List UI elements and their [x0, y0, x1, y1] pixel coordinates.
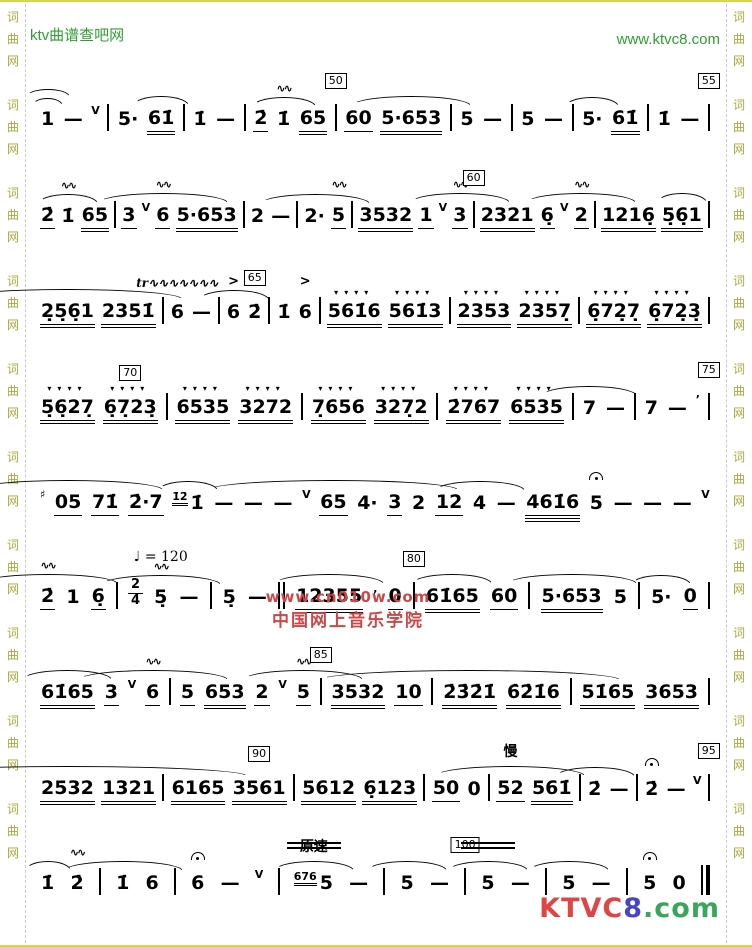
music-line: ♯0571̇2̇·71̇2̇1̇———V654·32124—461̇65———V	[40, 458, 710, 516]
logo-part: 8	[623, 893, 643, 924]
note-group: ∿∿6	[155, 173, 170, 229]
border-char: 曲	[728, 468, 750, 490]
barline	[626, 837, 628, 896]
sheet-music-page: 词曲网词曲网词曲网词曲网词曲网词曲网词曲网词曲网词曲网词曲网 词曲网词曲网词曲网…	[0, 0, 752, 947]
barline	[293, 743, 295, 802]
note-group: —	[605, 366, 626, 421]
note-group: 1̇	[657, 77, 672, 132]
note-group: 6	[145, 841, 160, 896]
border-char: 词	[728, 94, 750, 116]
note-group: 5	[613, 555, 628, 610]
note-group: 2̇	[587, 747, 602, 802]
note-group: 0	[672, 841, 687, 896]
border-char: 网	[728, 666, 750, 688]
barline	[351, 170, 353, 229]
border-char-group: 词曲网	[728, 358, 750, 424]
note-group: ∿∿5	[296, 650, 311, 706]
fermata-icon	[645, 758, 659, 766]
barline	[636, 743, 638, 802]
note-group: —	[482, 77, 503, 132]
note-group: ▾▾▾▾7̣656	[311, 365, 366, 421]
note-group: 2	[411, 461, 426, 516]
logo-part: .	[643, 893, 654, 924]
measure-number-box: 65	[244, 270, 266, 286]
staccato-marks-icon: ▾▾▾▾	[464, 288, 504, 297]
barline	[174, 837, 176, 896]
note-group: 0	[683, 554, 698, 610]
note-group: —	[429, 841, 450, 896]
note-group: —	[672, 461, 693, 516]
staccato-marks-icon: ▾▾▾▾	[381, 384, 421, 393]
note-group: ∿∿1̇	[60, 174, 75, 229]
site-name-link[interactable]: ktv曲谱查吧网	[30, 24, 124, 45]
note-group: ▾▾▾▾6535	[175, 365, 230, 421]
watermark-site-name: 中国网上音乐学院	[248, 606, 448, 631]
border-char: 网	[728, 842, 750, 864]
note-group: 5·653	[176, 173, 238, 229]
watermark-url: www.cn010w.com	[248, 588, 448, 606]
fermata-icon	[191, 852, 205, 860]
staccato-marks-icon: ▾▾▾▾	[395, 288, 435, 297]
note-group: 5	[459, 77, 474, 132]
barline	[708, 551, 710, 610]
watermark: www.cn010w.com 中国网上音乐学院	[248, 588, 448, 631]
staccato-marks-icon: ▾▾▾▾	[110, 384, 150, 393]
music-line: ▾▾▾▾5̣6̣27̣▾▾▾▾706̣7̣23̣▾▾▾▾6535▾▾▾▾3272…	[40, 363, 710, 421]
note-group: 7	[644, 366, 659, 421]
tremolo-lines-icon	[461, 842, 515, 849]
note-group: —	[220, 841, 241, 896]
border-char: 词	[728, 710, 750, 732]
slur-arc	[412, 574, 492, 584]
border-char: 网	[2, 226, 24, 248]
mordent-icon: ∿∿	[574, 178, 588, 191]
staccato-marks-icon: ▾▾▾▾	[334, 288, 374, 297]
barline	[570, 647, 572, 706]
note-group: ▾▾▾▾561̇3	[388, 269, 443, 325]
music-line: 2̇∿∿1̇653V∿∿65·6532—2·∿∿535321V∿∿3602321…	[40, 171, 710, 229]
border-char: 曲	[728, 28, 750, 50]
border-char: 网	[2, 138, 24, 160]
barline	[436, 362, 438, 421]
left-dashed-divider	[25, 4, 26, 943]
staccato-marks-icon: ▾▾▾▾	[525, 288, 565, 297]
border-char: 词	[728, 6, 750, 28]
note-group: 1̇	[115, 841, 130, 896]
note-group: tr∿∿∿∿∿∿∿6	[170, 270, 185, 325]
note-group: ▾▾▾▾2̇767	[446, 365, 501, 421]
barline	[701, 834, 710, 896]
staccato-marks-icon: ▾▾▾▾	[246, 384, 286, 393]
slur-arc	[133, 96, 189, 106]
barline	[450, 73, 452, 132]
accent-icon: >	[228, 274, 239, 289]
logo-part: KTVC	[539, 893, 623, 924]
note-group: 5·653	[541, 554, 603, 610]
note-group: ∿∿2̇	[40, 554, 55, 610]
barline: 85	[320, 647, 322, 706]
border-char: 词	[728, 622, 750, 644]
border-char: 网	[728, 50, 750, 72]
note-group: —	[348, 841, 369, 896]
note-group: ▾▾▾▾2353	[457, 269, 512, 325]
note-group: ▾▾▾▾706̣7̣23̣	[103, 365, 158, 421]
border-char-group: 词曲网	[2, 270, 24, 336]
border-char: 词	[728, 270, 750, 292]
note-group: 2532	[40, 746, 95, 802]
note-group: 5·653	[380, 76, 442, 132]
note-group: —	[510, 841, 531, 896]
note-group: —	[666, 747, 687, 802]
music-line: 1̇∿∿2̇1̇66—V原速6765—5—1005—5—50	[40, 838, 710, 896]
barline	[268, 266, 270, 325]
grace-notes: 676	[294, 870, 317, 886]
note-group: 6̣123	[362, 746, 417, 802]
barline	[162, 266, 164, 325]
border-char: 词	[2, 358, 24, 380]
border-char-group: 词曲网	[728, 94, 750, 160]
logo-part: com	[654, 893, 720, 924]
note-group: ▾▾▾▾6̣72̣3̣	[647, 269, 702, 325]
note-group: 61̇	[147, 76, 175, 132]
note-group: ▾▾▾▾561̇6	[327, 269, 382, 325]
note-group: 4·	[356, 461, 378, 516]
note-group: —	[613, 461, 634, 516]
note-group: 05	[54, 460, 82, 516]
mordent-icon: ∿∿	[296, 655, 310, 668]
breath-mark: V	[701, 457, 710, 516]
border-char: 曲	[2, 380, 24, 402]
barline: 60	[473, 170, 475, 229]
barline	[301, 362, 303, 421]
barline	[243, 170, 245, 229]
note-group: 3532	[358, 173, 413, 229]
border-char: 词	[2, 798, 24, 820]
note-group: 6	[190, 841, 205, 896]
border-char: 词	[2, 534, 24, 556]
barline	[647, 73, 649, 132]
staccato-marks-icon: ▾▾▾▾	[183, 384, 223, 393]
staccato-marks-icon: ▾▾▾▾	[655, 288, 695, 297]
note-group: ∿∿5	[331, 173, 346, 229]
border-char: 曲	[2, 204, 24, 226]
border-char: 网	[2, 402, 24, 424]
border-char: 网	[2, 490, 24, 512]
note-group: 51̇65	[580, 650, 635, 706]
tremolo-lines-icon	[287, 842, 341, 849]
staccato-marks-icon: ▾▾▾▾	[594, 288, 634, 297]
border-char-group: 词曲网	[728, 182, 750, 248]
barline: 50	[335, 73, 337, 132]
note-group: 1̇	[276, 270, 291, 325]
note-group: 1321	[101, 746, 156, 802]
border-char: 曲	[2, 820, 24, 842]
barline	[634, 362, 636, 421]
breath-mark: V	[91, 73, 100, 132]
fermata-icon	[643, 852, 657, 860]
note-group: 5	[520, 77, 535, 132]
note-group: —	[215, 77, 236, 132]
note-group: 461̇6	[525, 460, 580, 516]
border-char-group: 词曲网	[2, 446, 24, 512]
border-char: 曲	[2, 644, 24, 666]
border-char: 网	[728, 754, 750, 776]
note-group: 6165	[171, 746, 226, 802]
breath-mark: V	[255, 837, 264, 896]
border-char: 词	[2, 710, 24, 732]
staccato-marks-icon: ▾▾▾▾	[454, 384, 494, 393]
note-group: 原速6765	[294, 841, 334, 896]
note-group: 652̇	[247, 270, 262, 325]
note-group: —	[543, 77, 564, 132]
note-group: —	[178, 555, 199, 610]
note-group: 4	[472, 461, 487, 516]
note-group: 5̣	[222, 555, 237, 610]
barline	[210, 551, 212, 610]
mordent-icon: ∿∿	[70, 846, 84, 859]
note-group: —	[496, 461, 517, 516]
note-group: >6	[298, 270, 313, 325]
border-char: 词	[728, 798, 750, 820]
note-group: 5·	[581, 77, 603, 132]
border-char: 网	[728, 314, 750, 336]
note-group: 2̇3̇2̇1̇	[442, 650, 497, 706]
note-group: ▾▾▾▾5̣6̣27̣	[40, 365, 95, 421]
barline	[511, 73, 513, 132]
border-char: 网	[728, 578, 750, 600]
barline	[107, 73, 109, 132]
note-group: 61̇	[611, 76, 639, 132]
note-group: 1	[40, 77, 55, 132]
note-group: 1216̣	[601, 173, 656, 229]
right-dashed-divider	[726, 4, 727, 943]
grace-notes: 1̇2̇	[172, 490, 187, 506]
note-group: 5612	[301, 746, 356, 802]
border-char: 曲	[728, 732, 750, 754]
measure-number-box: 75	[698, 362, 720, 378]
accent-icon: >	[300, 274, 311, 289]
mordent-icon: ∿∿	[40, 559, 54, 572]
border-char: 网	[2, 314, 24, 336]
border-char-group: 词曲网	[2, 534, 24, 600]
border-char-group: 词曲网	[728, 446, 750, 512]
border-char: 网	[2, 666, 24, 688]
staccato-marks-icon: ▾▾▾▾	[47, 384, 87, 393]
barline	[244, 73, 246, 132]
mordent-icon: ∿∿	[156, 178, 170, 191]
border-char: 曲	[728, 556, 750, 578]
note-group: 5	[400, 841, 415, 896]
border-char: 词	[728, 446, 750, 468]
barline: 75	[708, 362, 710, 421]
top-border-line	[0, 0, 752, 2]
note-group: 5̣6̣1	[661, 173, 703, 229]
border-char-group: 词曲网	[728, 710, 750, 776]
border-char: 网	[728, 226, 750, 248]
border-char: 网	[728, 138, 750, 160]
mordent-icon: ∿∿	[276, 82, 290, 95]
barline	[169, 647, 171, 706]
barline	[708, 170, 710, 229]
border-char-group: 词曲网	[728, 798, 750, 864]
note-group: —	[642, 461, 663, 516]
slur-arc	[274, 574, 384, 584]
note-group: 5	[180, 650, 195, 706]
music-line: 61̇653V∿∿656532V∿∿5853532102̇3̇2̇1̇6̇2̇1…	[40, 648, 710, 706]
note-group: 1	[65, 555, 80, 610]
music-line: 25321321616590356156126̣123500慢52561̇2̇—…	[40, 744, 710, 802]
note-group: ∿∿1̇	[276, 77, 291, 132]
note-group: 1̇2̇1̇	[172, 461, 205, 516]
barline: 95	[708, 743, 710, 802]
border-char: 曲	[728, 380, 750, 402]
fermata-icon	[589, 472, 603, 480]
note-group: 903561	[232, 746, 287, 802]
right-watermark-border: 词曲网词曲网词曲网词曲网词曲网词曲网词曲网词曲网词曲网词曲网	[728, 6, 750, 947]
barline	[183, 73, 185, 132]
border-char: 网	[2, 50, 24, 72]
note-group: 1̇	[40, 841, 55, 896]
note-group: 6̇2̇1̇6	[506, 650, 561, 706]
note-group: 5	[480, 841, 495, 896]
barline	[594, 170, 596, 229]
note-group: 2̣5̣6̣1	[40, 269, 95, 325]
barline	[166, 362, 168, 421]
barline	[319, 266, 321, 325]
mordent-icon: ∿∿	[154, 560, 168, 573]
note-group: 7	[582, 366, 597, 421]
measure-number-box: 90	[248, 746, 270, 762]
music-line: 1—V5·61̇1̇—2̇∿∿1̇6550605·6535—5—5·61̇1̇—…	[40, 74, 710, 132]
ktvc8-logo[interactable]: KTVC8.com	[539, 893, 720, 924]
border-char-group: 词曲网	[728, 534, 750, 600]
barline	[708, 266, 710, 325]
barline	[708, 647, 710, 706]
barline	[423, 743, 425, 802]
barline	[578, 266, 580, 325]
note-group: 慢52	[496, 746, 524, 802]
note-group: 3653	[644, 650, 699, 706]
note-group: ♩ = 120∿∿5̣	[153, 555, 168, 610]
border-char: 词	[2, 182, 24, 204]
note-group: —	[591, 841, 612, 896]
music-line: 2̣5̣6̣12351̇tr∿∿∿∿∿∿∿6—>6652̇1̇>6▾▾▾▾561…	[40, 267, 710, 325]
slur-arc	[101, 575, 221, 585]
note-group: 2̇	[644, 747, 659, 802]
border-char: 词	[2, 622, 24, 644]
border-char: 曲	[728, 644, 750, 666]
border-char: 曲	[2, 116, 24, 138]
note-group: 65	[299, 76, 327, 132]
border-char: 词	[2, 446, 24, 468]
mordent-icon: ∿∿	[61, 179, 75, 192]
border-char-group: 词曲网	[728, 270, 750, 336]
border-char: 曲	[728, 116, 750, 138]
note-group: —	[609, 747, 630, 802]
note-group: ▾▾▾▾327̣2	[374, 365, 429, 421]
note-group: —	[63, 77, 84, 132]
border-char: 曲	[2, 732, 24, 754]
staccato-marks-icon: ▾▾▾▾	[318, 384, 358, 393]
border-char: 曲	[728, 204, 750, 226]
measure-number-box: 85	[310, 647, 332, 663]
border-char-group: 词曲网	[2, 182, 24, 248]
note-group: —	[667, 366, 688, 421]
barline: 55	[708, 73, 710, 132]
border-char-group: 词曲网	[2, 358, 24, 424]
mordent-icon: ∿∿	[331, 178, 345, 191]
border-char: 词	[2, 6, 24, 28]
note-group: 71̇	[91, 460, 119, 516]
border-char-group: 词曲网	[2, 622, 24, 688]
note-group: ▾▾▾▾6̣72̣7̣	[586, 269, 641, 325]
left-watermark-border: 词曲网词曲网词曲网词曲网词曲网词曲网词曲网词曲网词曲网词曲网	[2, 6, 24, 947]
note-group: ∿∿2	[574, 173, 589, 229]
note-group: >6	[226, 270, 241, 325]
note-group: 653	[204, 650, 246, 706]
note-group: 3	[387, 460, 402, 516]
note-group: 2·	[303, 174, 325, 229]
note-group: 5	[561, 841, 576, 896]
border-char-group: 词曲网	[2, 6, 24, 72]
border-char: 网	[2, 842, 24, 864]
measure-number-box: 55	[698, 73, 720, 89]
border-char: 曲	[728, 292, 750, 314]
note-group: ▾▾▾▾2357̣	[517, 269, 572, 325]
border-char: 网	[728, 490, 750, 512]
barline	[449, 266, 451, 325]
border-char: 词	[728, 534, 750, 556]
note-group: 65	[319, 460, 347, 516]
border-char-group: 词曲网	[2, 94, 24, 160]
border-char: 词	[728, 358, 750, 380]
border-char: 曲	[728, 820, 750, 842]
border-char: 词	[728, 182, 750, 204]
slur-arc	[657, 193, 707, 203]
measure-number-box: 80	[403, 551, 425, 567]
note-group: 5	[589, 461, 604, 516]
border-char-group: 词曲网	[728, 6, 750, 72]
note-group: 5	[642, 841, 657, 896]
note-group: ▾▾▾▾3272	[238, 365, 293, 421]
border-char-group: 词曲网	[2, 798, 24, 864]
border-char: 词	[2, 94, 24, 116]
border-char: 网	[728, 402, 750, 424]
tempo-label: 慢	[503, 741, 517, 761]
border-char: 词	[2, 270, 24, 292]
site-url-link[interactable]: www.ktvc8.com	[617, 31, 720, 48]
measure-number-box: 95	[698, 743, 720, 759]
note-group: 5·	[650, 555, 672, 610]
note-group: 1̇	[192, 77, 207, 132]
border-char: 曲	[2, 28, 24, 50]
note-group: ∿∿6	[145, 650, 160, 706]
mordent-icon: ∿∿	[145, 655, 159, 668]
measure-number-box: 70	[119, 365, 141, 381]
border-char-group: 词曲网	[728, 622, 750, 688]
barline	[162, 743, 164, 802]
